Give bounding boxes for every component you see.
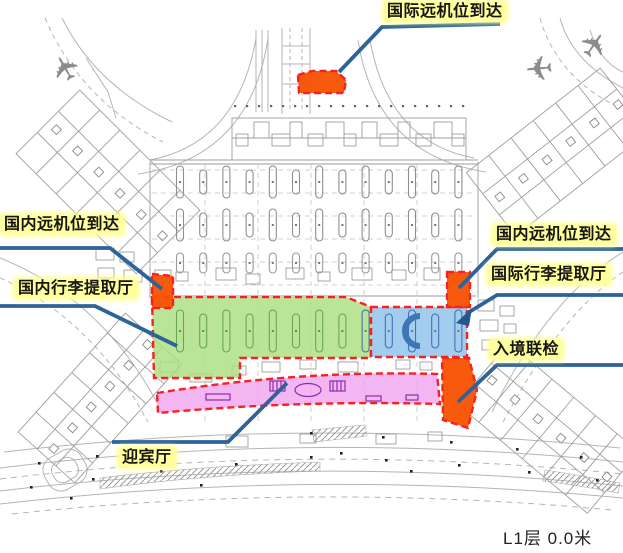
airplane-icon: ✈ (523, 46, 555, 88)
label-international-remote-stand-arrival: 国际远机位到达 (384, 2, 506, 21)
label-domestic-remote-stand-arrival-left: 国内远机位到达 (1, 215, 123, 234)
leader-entry-joint-inspection (458, 365, 623, 402)
region-international-remote-stand-arrival (298, 71, 346, 93)
region-domestic-remote-stand-arrival-right (447, 272, 470, 307)
label-entry-joint-inspection: 入境联检 (490, 340, 562, 359)
baggage-carousel-rows (177, 166, 462, 273)
label-international-baggage-claim-hall: 国际行李提取厅 (488, 265, 610, 284)
floor-level-label: L1层 0.0米 (503, 524, 592, 549)
airplane-icon: ✈ (570, 23, 619, 69)
airplane-icon: ✈ (42, 45, 91, 90)
label-domestic-remote-stand-arrival-right: 国内远机位到达 (493, 225, 615, 244)
floor-plan-page: ✈ ✈ ✈ 国际远机位到达 国内远机位到达 国内行李提取厅 国内远机位到达 国际… (0, 0, 623, 553)
label-domestic-baggage-claim-hall: 国内行李提取厅 (15, 279, 137, 298)
region-welcome-hall (157, 373, 440, 413)
label-welcome-hall: 迎宾厅 (119, 448, 175, 467)
region-domestic-remote-stand-arrival-left (152, 274, 173, 308)
region-entry-joint-inspection (442, 358, 477, 428)
